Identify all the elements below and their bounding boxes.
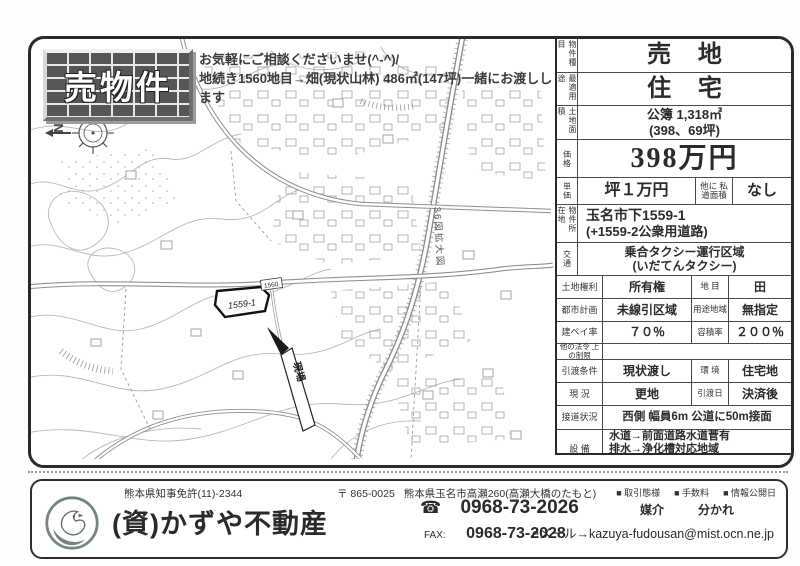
row-unit-price: 単価 坪１万円 他に 私道面積 なし — [557, 178, 791, 205]
far-label: 容積率 — [691, 322, 729, 343]
land-rights-value: 所有権 — [603, 276, 691, 298]
row-coverage: 建ペイ率 ７０％ 容積率 ２００％ — [557, 322, 791, 344]
other-laws-label: 他の法令 上の制限 — [557, 344, 603, 359]
row-location: 物件所在地 玉名市下1559-1 (+1559-2公衆用道路) — [557, 205, 791, 243]
row-best-use: 最適用途 住 宅 — [557, 73, 791, 106]
transport-line1: 乗合タクシー運行区域 — [624, 245, 744, 259]
row-other-laws: 他の法令 上の制限 — [557, 344, 791, 360]
main-frame: N 1559-1 1560 現場 36図拡大図 売物件 お気軽にご相談くだ — [28, 36, 794, 468]
price-value: 398万円 — [578, 140, 791, 177]
location-line2: (+1559-2公衆用道路) — [586, 224, 708, 240]
header-note-line1: お気軽にご相談くださいませ(^-^)/ — [199, 51, 559, 70]
coverage-value: ７０％ — [603, 322, 691, 343]
coverage-label: 建ペイ率 — [557, 322, 603, 343]
tel-value: 0968-73-2026 — [460, 497, 578, 518]
row-city-planning: 都市計画 未線引区域 用途地域 無指定 — [557, 299, 791, 322]
road-name-label: 36図拡大図 — [431, 207, 446, 268]
private-road-value: なし — [733, 178, 791, 204]
row-road-access: 接道状況 西側 幅員6m 公道に50m接面 — [557, 406, 791, 430]
for-sale-banner-text: 売物件 — [64, 61, 172, 109]
for-sale-banner: 売物件 — [43, 49, 193, 121]
best-use-value: 住 宅 — [578, 73, 791, 105]
transport-label: 交通 — [557, 243, 578, 275]
footer-legend: ■ 取引態様 ■ 手数料 ■ 情報公開日 — [616, 486, 776, 499]
unit-price-label: 単価 — [557, 178, 578, 204]
price-label: 価格 — [557, 140, 578, 177]
environment-label: 環 境 — [691, 360, 729, 382]
row-land-rights: 土地権利 所有権 地 目 田 — [557, 276, 791, 299]
facilities-line1: 水道→前面道路水道菅有 — [609, 430, 730, 443]
flyer-page: N 1559-1 1560 現場 36図拡大図 売物件 お気軽にご相談くだ — [0, 0, 800, 566]
header-note: お気軽にご相談くださいませ(^-^)/ 地続き1560地目→畑(現状山林) 48… — [199, 51, 559, 108]
handover-condition-value: 現状渡し — [603, 360, 691, 382]
row-handover-condition: 引渡条件 現状渡し 環 境 住宅地 — [557, 360, 791, 383]
row-current-state: 現 況 更地 引渡日 決済後 — [557, 383, 791, 406]
location-line1: 玉名市下1559-1 — [586, 207, 686, 224]
legend-disclosure: ■ 情報公開日 — [723, 486, 776, 499]
telephone-icon: ☎ — [420, 498, 441, 517]
license-number: 熊本県知事免許(11)-2344 — [124, 486, 242, 501]
best-use-label: 最適用途 — [557, 73, 578, 105]
facilities-label: 設 備 — [557, 430, 603, 455]
company-logo — [44, 495, 100, 551]
row-land-area: 土地面積 公簿 1,318㎡ (398、69坪) — [557, 106, 791, 140]
transport-line2: (いだてんタクシー) — [633, 259, 737, 273]
far-value: ２００％ — [729, 322, 791, 343]
unit-price-value: 坪１万円 — [578, 178, 695, 204]
compass-north-label: N — [51, 123, 66, 132]
land-category-value: 田 — [729, 276, 791, 298]
row-facilities: 設 備 水道→前面道路水道菅有 排水→浄化槽対応地域 プロパンガス — [557, 430, 791, 455]
road-access-label: 接道状況 — [557, 406, 603, 429]
other-laws-value — [603, 344, 791, 359]
zoning-label: 用途地域 — [691, 299, 729, 321]
footer-box: 熊本県知事免許(11)-2344 〒 865-0025 熊本県玉名市高瀬260(… — [30, 479, 788, 559]
legend-fee: ■ 手数料 — [674, 486, 709, 499]
email-address: eメール→kazuya-fudousan@mist.ocn.ne.jp — [532, 523, 774, 542]
row-transport: 交通 乗合タクシー運行区域 (いだてんタクシー) — [557, 243, 791, 276]
handover-condition-label: 引渡条件 — [557, 360, 603, 382]
handover-date-value: 決済後 — [729, 383, 791, 405]
orchard-area — [61, 149, 181, 224]
environment-value: 住宅地 — [729, 360, 791, 382]
property-type-value: 売 地 — [578, 39, 791, 72]
land-area-value: 公簿 1,318㎡ — [647, 107, 722, 123]
header-note-line2: 地続き1560地目→畑(現状山林) 486㎡(147坪)一緒にお渡しします — [199, 70, 559, 108]
property-details-panel: 物件種目 売 地 最適用途 住 宅 土地面積 公簿 1,318㎡ (398、69… — [555, 39, 791, 455]
dotted-divider — [28, 471, 788, 473]
phone-number: ☎ 0968-73-2026 — [420, 497, 579, 519]
settlement-areas — [201, 51, 546, 447]
postal-code: 〒 865-0025 — [337, 488, 395, 500]
property-type-label: 物件種目 — [557, 39, 578, 72]
fax-label: FAX: — [424, 530, 446, 541]
facilities-line2: 排水→浄化槽対応地域 — [609, 443, 719, 455]
transaction-type-value: 媒介 — [640, 501, 664, 518]
land-area-label: 土地面積 — [557, 106, 578, 139]
row-price: 価格 398万円 — [557, 140, 791, 178]
road-access-value: 西側 幅員6m 公道に50m接面 — [603, 406, 791, 429]
current-state-label: 現 況 — [557, 383, 603, 405]
land-area-tsubo: (398、69坪) — [649, 123, 720, 139]
land-category-label: 地 目 — [691, 276, 729, 298]
private-road-label: 他に 私道面積 — [695, 178, 733, 204]
handover-date-label: 引渡日 — [691, 383, 729, 405]
transaction-values: 媒介 分かれ — [640, 501, 734, 518]
legend-transaction: ■ 取引態様 — [616, 486, 660, 499]
zoning-value: 無指定 — [729, 299, 791, 321]
land-rights-label: 土地権利 — [557, 276, 603, 298]
fee-value: 分かれ — [698, 501, 734, 518]
city-planning-label: 都市計画 — [557, 299, 603, 321]
location-label: 物件所在地 — [557, 205, 578, 242]
company-name: (資)かずや不動産 — [112, 502, 328, 541]
current-state-value: 更地 — [603, 383, 691, 405]
city-planning-value: 未線引区域 — [603, 299, 691, 321]
row-property-type: 物件種目 売 地 — [557, 39, 791, 73]
